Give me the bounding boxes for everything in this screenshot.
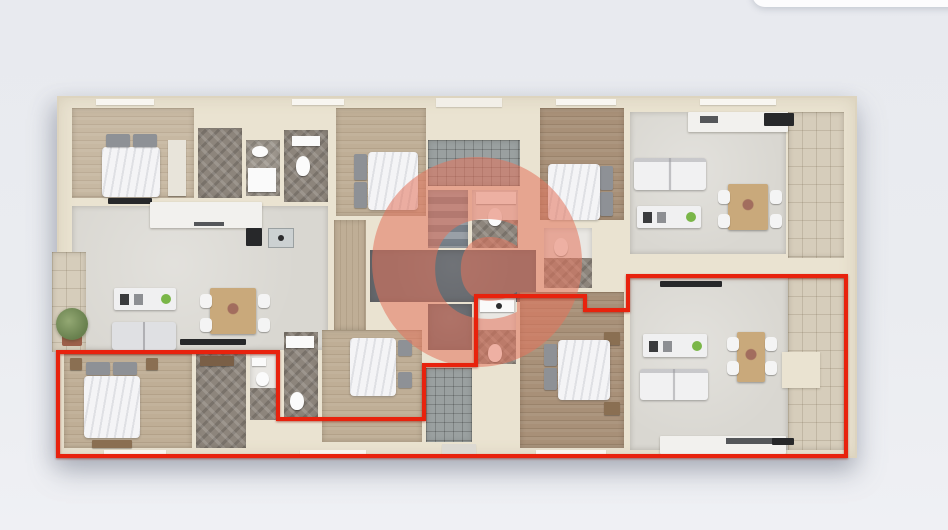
chair xyxy=(727,337,739,351)
bed xyxy=(368,152,418,210)
bathroom-floor xyxy=(250,388,278,420)
window xyxy=(700,99,776,105)
sink xyxy=(286,336,314,348)
shower xyxy=(268,228,294,248)
dining-table xyxy=(210,288,256,334)
floor-plan-viewport: C xyxy=(0,0,948,530)
chair xyxy=(770,214,782,228)
toilet xyxy=(296,156,310,176)
window xyxy=(104,450,166,456)
dining-table xyxy=(728,184,768,230)
bed xyxy=(558,340,610,400)
overlay-panel-cutoff[interactable] xyxy=(752,0,948,7)
window xyxy=(300,450,366,456)
sink xyxy=(252,358,266,366)
nightstand xyxy=(146,358,158,370)
bed-pillow xyxy=(600,192,613,216)
chair xyxy=(765,337,777,351)
chair xyxy=(258,318,270,332)
entry-vestibule xyxy=(428,140,520,186)
chair xyxy=(258,294,270,308)
plant xyxy=(56,308,88,340)
bed-pillow xyxy=(113,362,137,375)
dining-table xyxy=(737,332,765,382)
entry-door-top xyxy=(436,98,502,107)
window xyxy=(556,99,616,105)
corridor-core xyxy=(370,250,536,302)
terrace-wall-step xyxy=(782,352,820,388)
room-hall-bottom-left xyxy=(196,354,246,448)
toilet xyxy=(554,238,568,256)
tv-console xyxy=(114,288,176,310)
chair xyxy=(200,294,212,308)
bathroom-floor xyxy=(544,258,592,288)
bed-pillow xyxy=(106,134,130,147)
room-hall-middle xyxy=(334,220,366,330)
nightstand xyxy=(70,358,82,370)
nightstand xyxy=(604,402,620,415)
bed-pillow xyxy=(544,344,557,366)
tv-console xyxy=(637,206,701,228)
wardrobe xyxy=(200,356,234,366)
chair xyxy=(200,318,212,332)
building-floor-plan xyxy=(0,0,948,530)
bed-pillow xyxy=(600,166,613,190)
cooktop xyxy=(246,228,262,246)
chair xyxy=(727,361,739,375)
shelf xyxy=(168,140,186,196)
cooktop xyxy=(764,113,794,126)
stairs xyxy=(428,190,468,248)
toilet xyxy=(488,208,502,226)
window xyxy=(292,99,344,105)
sink xyxy=(292,136,320,146)
entry-bottom-right xyxy=(426,368,472,442)
kitchen-sink xyxy=(700,116,718,123)
sofa xyxy=(112,322,176,350)
bed xyxy=(548,164,600,220)
terrace-top-right xyxy=(788,112,844,258)
bed xyxy=(84,376,140,438)
bed-pillow xyxy=(398,372,412,388)
bed-pillow xyxy=(133,134,157,147)
window xyxy=(96,99,154,105)
chair xyxy=(718,190,730,204)
tv xyxy=(660,281,722,287)
toilet xyxy=(256,372,269,386)
bed-pillow xyxy=(398,340,412,356)
bathtub xyxy=(476,192,516,204)
bed xyxy=(102,147,160,197)
bed-pillow xyxy=(544,368,557,390)
chair xyxy=(718,214,730,228)
cooktop xyxy=(772,438,794,445)
room-hall-top-left xyxy=(198,128,242,198)
kitchen-sink xyxy=(194,222,224,226)
toilet xyxy=(290,392,304,410)
entry-door-bottom xyxy=(442,444,476,454)
corridor-stub xyxy=(428,304,472,350)
sofa xyxy=(634,158,706,190)
chair xyxy=(765,361,777,375)
faucet xyxy=(496,303,502,309)
window xyxy=(536,450,606,456)
bathtub xyxy=(248,168,276,192)
bed-bench xyxy=(92,440,132,448)
toilet xyxy=(488,344,502,362)
kitchen-worktop xyxy=(726,438,774,444)
bed xyxy=(350,338,396,396)
bed-pillow xyxy=(86,362,110,375)
bed-pillow xyxy=(354,154,367,180)
tv xyxy=(180,339,246,345)
bed-pillow xyxy=(354,182,367,208)
toilet xyxy=(252,146,268,157)
tv xyxy=(108,198,152,204)
chair xyxy=(770,190,782,204)
sofa xyxy=(640,369,708,400)
tv-console xyxy=(643,334,707,357)
